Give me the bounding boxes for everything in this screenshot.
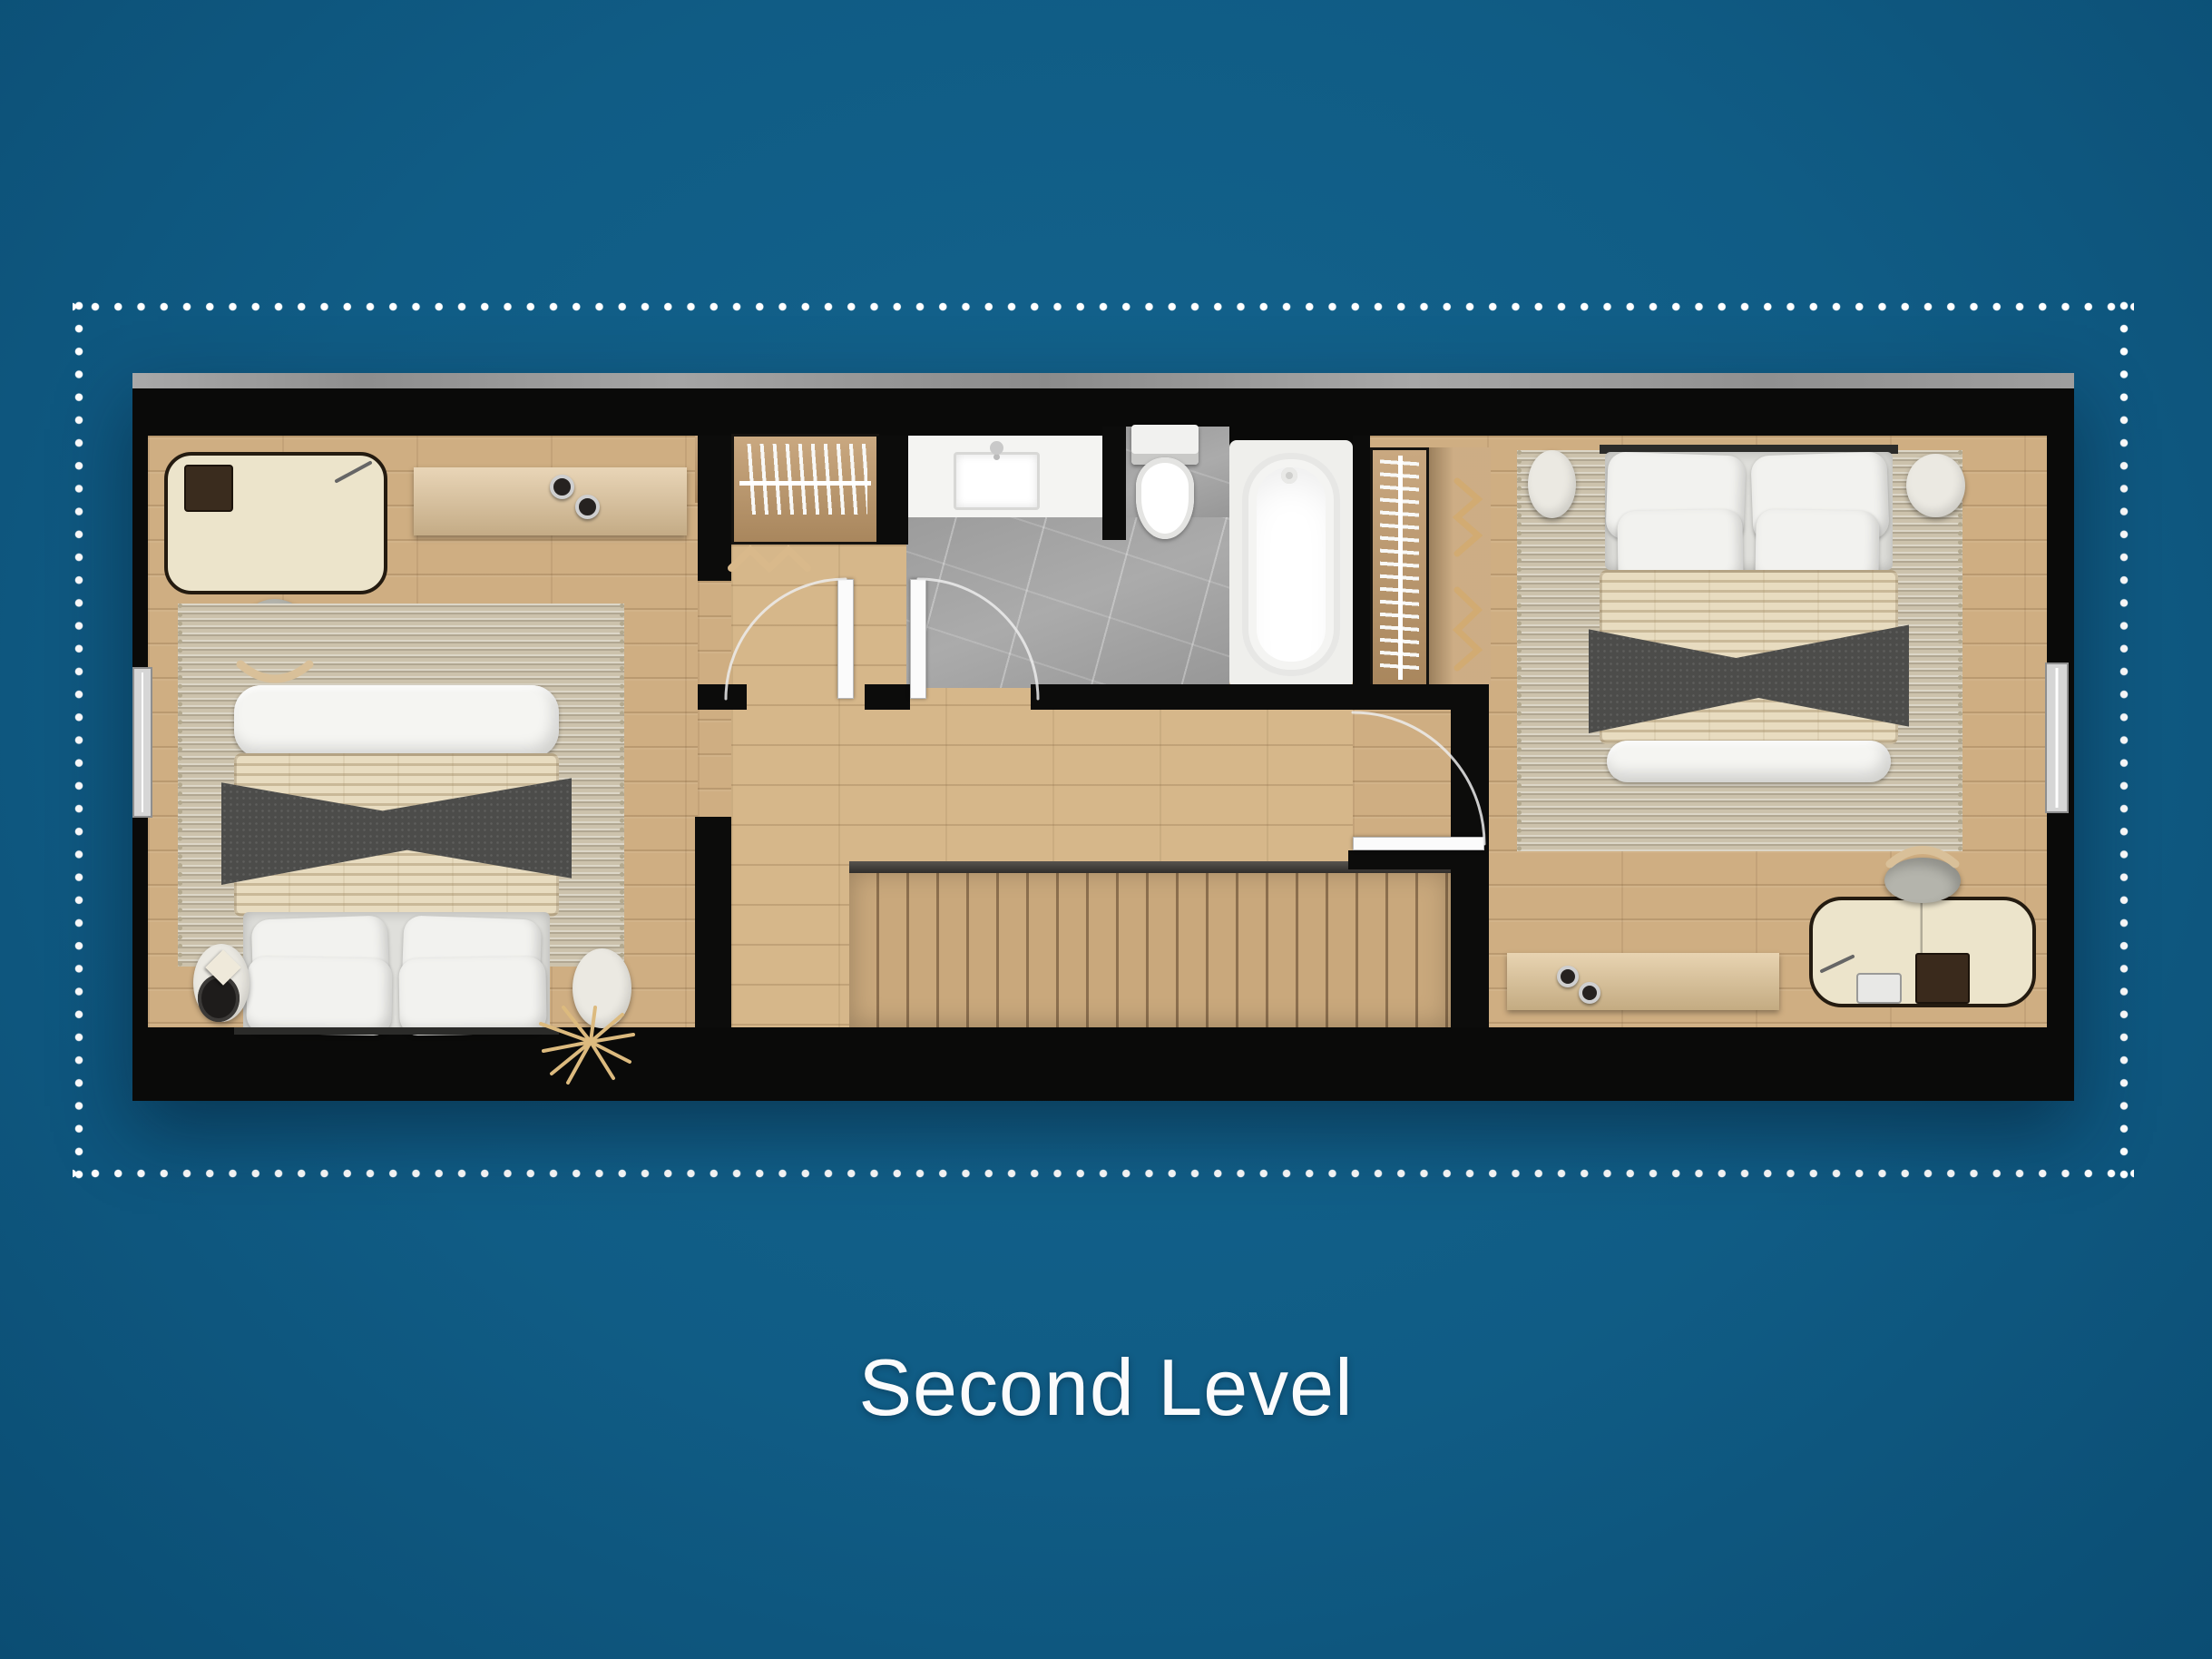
laptop-icon xyxy=(184,465,233,512)
wall xyxy=(1031,684,1451,710)
pillow xyxy=(398,957,546,1036)
bathtub xyxy=(1242,453,1340,676)
wall xyxy=(876,436,908,545)
floor-plan-scene: Second Level xyxy=(0,0,2212,1659)
wall xyxy=(865,684,910,710)
duvet-roll xyxy=(1607,741,1891,782)
nightstand-right xyxy=(573,948,631,1028)
wall xyxy=(1348,850,1451,869)
dotted-border-bottom xyxy=(73,1167,2134,1180)
wall xyxy=(1102,427,1126,540)
wall xyxy=(698,436,731,581)
window-left xyxy=(132,667,152,818)
staircase xyxy=(849,869,1451,1027)
pencil-case-icon xyxy=(1856,973,1902,1004)
wall xyxy=(1353,436,1370,688)
bathroom-tile-floor xyxy=(906,517,1229,688)
duvet-roll xyxy=(234,685,559,758)
vanity-sink xyxy=(954,452,1040,510)
bed-left xyxy=(234,685,559,1035)
candle-bowl xyxy=(1557,966,1579,987)
hangers-icon xyxy=(1380,459,1419,676)
dotted-border-left xyxy=(73,300,85,1180)
desk-chair-right xyxy=(1884,858,1961,903)
pillow xyxy=(246,957,392,1036)
dotted-border-top xyxy=(73,300,2134,313)
exterior-top-wall xyxy=(132,373,2074,388)
pouf-left xyxy=(1528,450,1576,518)
candle-bowl xyxy=(575,495,600,519)
window-right xyxy=(2045,663,2069,813)
closet-left-wardrobe xyxy=(731,434,879,545)
candle-bowl xyxy=(1579,982,1600,1004)
wall xyxy=(1451,684,1489,1027)
pouf-right xyxy=(1906,454,1965,517)
closet-right-ledge xyxy=(1429,447,1491,688)
wall xyxy=(698,684,747,710)
bed-right xyxy=(1600,445,1898,782)
level-caption: Second Level xyxy=(0,1341,2212,1434)
candle-bowl xyxy=(550,475,574,499)
sink-faucet-icon xyxy=(990,441,1003,455)
notebook-icon xyxy=(1915,953,1970,1004)
hangers-icon xyxy=(743,444,867,515)
wall xyxy=(695,817,731,1027)
shelf-left xyxy=(414,467,687,535)
closet-right-wardrobe xyxy=(1370,447,1429,688)
low-bench xyxy=(1507,953,1779,1010)
floor-plan-render xyxy=(132,373,2074,1101)
headboard xyxy=(234,1027,559,1035)
door-leaf-shower xyxy=(910,579,926,699)
tub-faucet-icon xyxy=(1281,467,1297,484)
toilet-bowl xyxy=(1136,457,1194,539)
door-leaf-bedroom-left xyxy=(837,579,854,699)
door-leaf-bedroom-right xyxy=(1353,837,1484,850)
dotted-border-right xyxy=(2118,300,2130,1180)
